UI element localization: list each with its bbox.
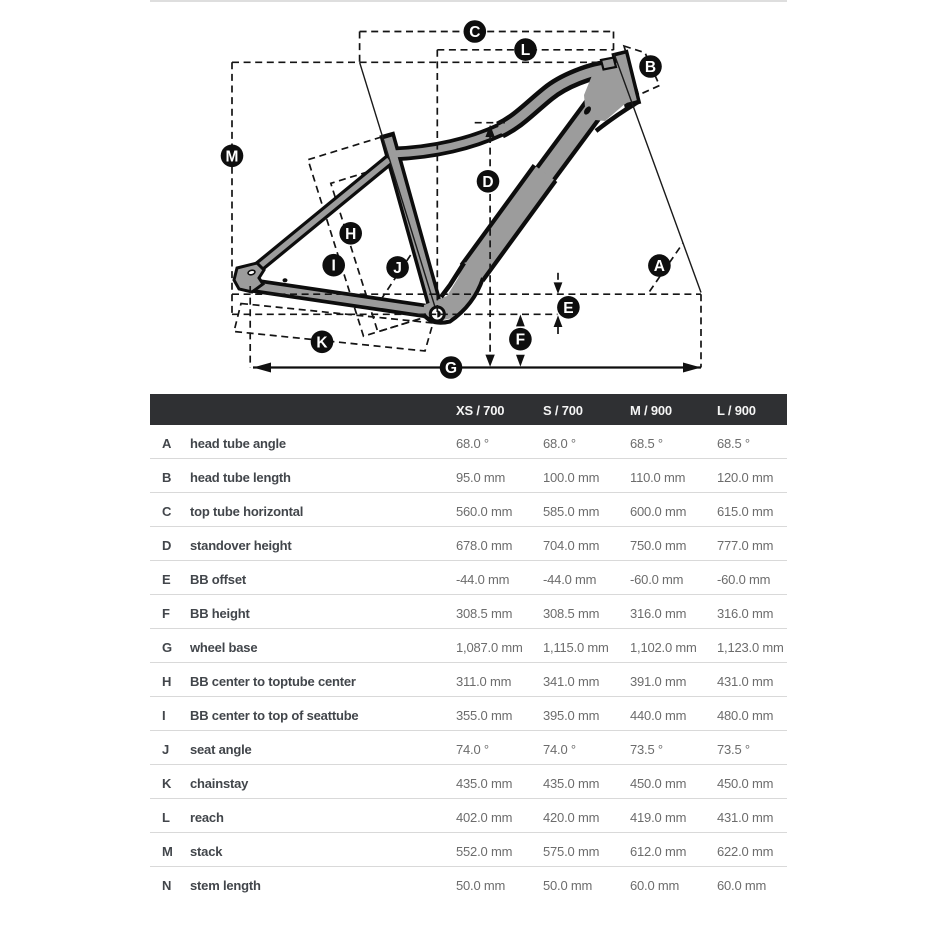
svg-text:I: I	[332, 258, 336, 275]
svg-text:K: K	[316, 334, 328, 351]
svg-text:F: F	[516, 332, 525, 349]
svg-text:M: M	[226, 148, 239, 165]
svg-text:D: D	[482, 174, 493, 191]
svg-text:A: A	[654, 258, 665, 275]
svg-text:L: L	[521, 42, 530, 59]
svg-text:C: C	[469, 24, 480, 41]
svg-text:G: G	[445, 360, 457, 377]
svg-text:J: J	[393, 260, 402, 277]
svg-text:E: E	[563, 300, 573, 317]
svg-text:B: B	[645, 59, 656, 76]
svg-text:H: H	[345, 226, 356, 243]
